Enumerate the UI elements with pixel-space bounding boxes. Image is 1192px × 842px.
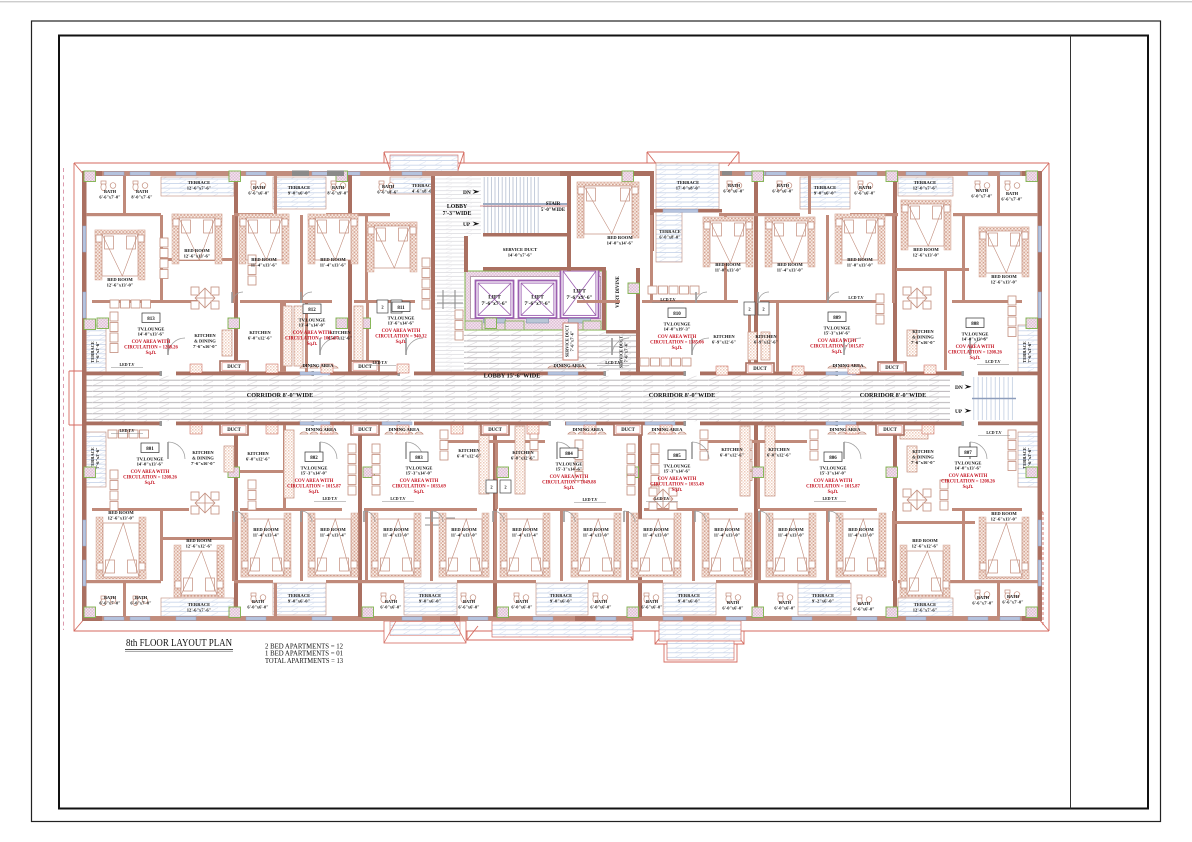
- svg-text:TERRACE7'-6"x3'-6": TERRACE7'-6"x3'-6": [90, 447, 100, 469]
- svg-text:12'-6"x7'-6": 12'-6"x7'-6": [913, 607, 938, 612]
- svg-text:KITCHEN& DINING7'-6"x16'-0": KITCHEN& DINING7'-6"x16'-0": [191, 450, 215, 466]
- svg-text:9'-2"x6'-0": 9'-2"x6'-0": [812, 598, 835, 603]
- svg-text:LCD T.V: LCD T.V: [986, 431, 1001, 435]
- svg-text:LIFT: LIFT: [531, 294, 544, 300]
- svg-text:DN: DN: [955, 385, 963, 391]
- svg-text:DUCT: DUCT: [621, 428, 635, 433]
- svg-text:TERRACE: TERRACE: [412, 183, 434, 188]
- svg-text:KITCHEN6'-0"x12'-6": KITCHEN6'-0"x12'-6": [246, 451, 270, 461]
- svg-text:7'-6"x9'-6": 7'-6"x9'-6": [566, 295, 592, 301]
- svg-text:KITCHEN6'-0"x12'-6": KITCHEN6'-0"x12'-6": [457, 448, 481, 458]
- svg-text:TERRACE: TERRACE: [812, 593, 834, 598]
- svg-text:809: 809: [833, 316, 841, 321]
- svg-text:LOBBY 15'-6"WIDE: LOBBY 15'-6"WIDE: [484, 373, 541, 380]
- svg-text:12'-6"x7'-6": 12'-6"x7'-6": [187, 607, 212, 612]
- svg-text:813: 813: [147, 317, 155, 322]
- svg-text:LED T.V: LED T.V: [323, 497, 338, 501]
- svg-text:TERRACE: TERRACE: [678, 593, 700, 598]
- svg-text:LOBBY7'-3"WIDE: LOBBY7'-3"WIDE: [443, 204, 472, 217]
- svg-text:LCD T.V: LCD T.V: [848, 296, 863, 300]
- svg-text:BED ROOM11'-4"x13'-0": BED ROOM11'-4"x13'-0": [383, 527, 410, 538]
- svg-text:BED ROOM11'-0"x13'-0": BED ROOM11'-0"x13'-0": [715, 262, 742, 273]
- svg-text:KITCHEN6'-9"x12'-6": KITCHEN6'-9"x12'-6": [712, 334, 736, 344]
- svg-text:DINING AREA: DINING AREA: [305, 427, 337, 432]
- svg-text:812: 812: [308, 308, 316, 313]
- svg-text:DUCT: DUCT: [883, 428, 897, 433]
- svg-text:BED ROOM11'-4"x13'-0": BED ROOM11'-4"x13'-0": [777, 262, 804, 273]
- svg-text:9'-0"x6'-0": 9'-0"x6'-0": [814, 190, 837, 195]
- svg-text:LCD T.V: LCD T.V: [390, 497, 405, 501]
- svg-text:810: 810: [673, 312, 681, 317]
- svg-text:DINING AREA: DINING AREA: [651, 427, 683, 432]
- svg-text:BED ROOM11'-4"x13'-0": BED ROOM11'-4"x13'-0": [451, 527, 478, 538]
- svg-text:9'-0"x6'-0": 9'-0"x6'-0": [550, 598, 573, 603]
- svg-text:BED ROOM12'-6"x13'-0": BED ROOM12'-6"x13'-0": [107, 277, 134, 288]
- svg-text:KITCHEN6'-0"x12'-6": KITCHEN6'-0"x12'-6": [720, 447, 744, 457]
- svg-text:807: 807: [964, 451, 972, 456]
- svg-text:BED ROOM12'-6"x12'-6": BED ROOM12'-6"x12'-6": [186, 538, 213, 549]
- svg-text:BED ROOM11'-4"x13'-6": BED ROOM11'-4"x13'-6": [251, 257, 278, 268]
- svg-text:TERRACE: TERRACE: [914, 602, 936, 607]
- svg-text:805: 805: [673, 454, 681, 459]
- svg-text:LIFT: LIFT: [488, 294, 501, 300]
- svg-text:DUCT: DUCT: [488, 428, 502, 433]
- svg-text:KITCHEN6'-0"x12'-6": KITCHEN6'-0"x12'-6": [767, 447, 791, 457]
- svg-text:DUCT: DUCT: [885, 366, 899, 371]
- svg-text:808: 808: [971, 322, 979, 327]
- svg-text:KITCHEN& DINING7'-6"x16'-0": KITCHEN& DINING7'-6"x16'-0": [911, 329, 935, 345]
- svg-text:LED T.V: LED T.V: [373, 361, 388, 365]
- svg-text:LED T.V: LED T.V: [583, 498, 598, 502]
- svg-text:LCD T.V: LCD T.V: [654, 497, 669, 501]
- svg-text:TV.LOUNGE14'-0"x13'-6": TV.LOUNGE14'-0"x13'-6": [962, 332, 989, 342]
- svg-text:BED ROOM11'-4"x13'-6": BED ROOM11'-4"x13'-6": [320, 257, 347, 268]
- svg-text:CORRIDOR 8'-0"WIDE: CORRIDOR 8'-0"WIDE: [860, 392, 927, 399]
- svg-text:VERY DIVINE: VERY DIVINE: [616, 276, 621, 308]
- svg-text:TERRACE: TERRACE: [419, 593, 441, 598]
- svg-text:TERRACE7'-6"x3'-6": TERRACE7'-6"x3'-6": [90, 341, 100, 363]
- svg-text:802: 802: [310, 456, 318, 461]
- svg-text:LCD T.V: LCD T.V: [985, 360, 1000, 364]
- svg-text:9'-0"x6'-0": 9'-0"x6'-0": [419, 598, 442, 603]
- svg-text:LCD T.V: LCD T.V: [605, 361, 620, 365]
- svg-text:BED ROOM12'-6"x13'-0": BED ROOM12'-6"x13'-0": [991, 274, 1018, 285]
- svg-text:BED ROOM11'-4"x13'-0": BED ROOM11'-4"x13'-0": [643, 527, 670, 538]
- svg-text:17'-0"x8'-0": 17'-0"x8'-0": [676, 185, 701, 190]
- svg-text:LED T.V: LED T.V: [120, 429, 135, 433]
- svg-text:806: 806: [829, 456, 837, 461]
- svg-text:TERRACE7'-6"x3'-6": TERRACE7'-6"x3'-6": [1022, 447, 1032, 469]
- svg-text:TERRACE: TERRACE: [188, 180, 210, 185]
- svg-text:TV.LOUNGE15'-3"x14'-0": TV.LOUNGE15'-3"x14'-0": [406, 466, 433, 476]
- svg-text:9'-0"x6'-0": 9'-0"x6'-0": [288, 190, 311, 195]
- svg-text:LED T.V: LED T.V: [120, 363, 135, 367]
- svg-text:801: 801: [146, 447, 154, 452]
- svg-text:BED ROOM12'-6"x13'-0": BED ROOM12'-6"x13'-0": [991, 511, 1018, 522]
- svg-text:KITCHEN6'-0"x12'-6": KITCHEN6'-0"x12'-6": [511, 450, 535, 460]
- svg-text:UP: UP: [463, 222, 471, 228]
- svg-text:TV.LOUNGE15'-3"x14'-6": TV.LOUNGE15'-3"x14'-6": [664, 464, 691, 474]
- svg-text:BED ROOM12'-6"x13'-0": BED ROOM12'-6"x13'-0": [108, 510, 135, 521]
- svg-text:12'-0"x7'-6": 12'-0"x7'-6": [913, 185, 938, 190]
- svg-text:DINING AREA: DINING AREA: [829, 427, 861, 432]
- svg-text:TV.LOUNGE14'-0"x13'-6": TV.LOUNGE14'-0"x13'-6": [138, 327, 165, 337]
- svg-text:SERVICE DUCT14'-0"x7'-6": SERVICE DUCT14'-0"x7'-6": [503, 247, 537, 258]
- svg-text:BED ROOM11'-4"x13'-4": BED ROOM11'-4"x13'-4": [512, 527, 539, 538]
- svg-text:TV.LOUNGE15'-3"x14'-0": TV.LOUNGE15'-3"x14'-0": [301, 466, 328, 476]
- svg-text:TV.LOUNGE14'-0"x13'-6": TV.LOUNGE14'-0"x13'-6": [955, 461, 982, 471]
- svg-text:KITCHEN6'-9"x12'-6": KITCHEN6'-9"x12'-6": [754, 334, 778, 344]
- svg-text:DINING AREA: DINING AREA: [302, 363, 334, 368]
- svg-text:TERRACE6'-0"x8'-0": TERRACE6'-0"x8'-0": [659, 229, 681, 239]
- svg-text:DINING AREA: DINING AREA: [572, 427, 604, 432]
- svg-text:UP: UP: [955, 409, 963, 415]
- svg-text:LIFT: LIFT: [573, 288, 586, 294]
- svg-text:DINING AREA: DINING AREA: [388, 427, 420, 432]
- svg-text:TERRACE: TERRACE: [814, 185, 836, 190]
- svg-text:BED ROOM11'-4"x13'-4": BED ROOM11'-4"x13'-4": [320, 527, 347, 538]
- svg-text:DUCT: DUCT: [753, 367, 767, 372]
- svg-text:BED ROOM12'-6"x13'-0": BED ROOM12'-6"x13'-0": [913, 247, 940, 258]
- svg-text:DUCT: DUCT: [227, 365, 241, 370]
- svg-text:TERRACE7'-6"x3'-6": TERRACE7'-6"x3'-6": [1022, 341, 1032, 363]
- svg-text:TV.LOUNGE13'-4"x14'-0": TV.LOUNGE13'-4"x14'-0": [299, 318, 326, 328]
- svg-text:BED ROOM11'-4"x13'-0": BED ROOM11'-4"x13'-0": [778, 527, 805, 538]
- svg-text:7'-6"x7'-6": 7'-6"x7'-6": [524, 301, 550, 307]
- svg-text:9'-0"x6'-0": 9'-0"x6'-0": [678, 598, 701, 603]
- svg-text:DN: DN: [463, 190, 471, 196]
- svg-text:DINING AREA: DINING AREA: [553, 363, 585, 368]
- svg-text:TERRACE: TERRACE: [188, 602, 210, 607]
- svg-text:KITCHEN6'-0"x12'-6": KITCHEN6'-0"x12'-6": [248, 330, 272, 340]
- svg-text:BED ROOM11'-4"x13'-4": BED ROOM11'-4"x13'-4": [253, 527, 280, 538]
- svg-text:DINING AREA: DINING AREA: [832, 363, 864, 368]
- svg-text:LCD T.V: LCD T.V: [660, 298, 675, 302]
- svg-text:7'-6"x7'-6": 7'-6"x7'-6": [481, 301, 507, 307]
- svg-text:KITCHEN& DINING7'-6"x16'-0": KITCHEN& DINING7'-6"x16'-0": [193, 333, 217, 349]
- svg-text:12'-6"x7'-6": 12'-6"x7'-6": [187, 185, 212, 190]
- svg-text:KITCHEN& DINING7'-6"x16'-0": KITCHEN& DINING7'-6"x16'-0": [911, 449, 935, 465]
- svg-text:CORRIDOR 8'-0"WIDE: CORRIDOR 8'-0"WIDE: [649, 392, 716, 399]
- svg-text:TERRACE: TERRACE: [550, 593, 572, 598]
- svg-text:BED ROOM11'-4"x13'-0": BED ROOM11'-4"x13'-0": [583, 527, 610, 538]
- svg-text:TV.LOUNGE15'-3"x14'-0": TV.LOUNGE15'-3"x14'-0": [820, 466, 847, 476]
- svg-text:LED T.V: LED T.V: [823, 497, 838, 501]
- svg-text:TERRACE: TERRACE: [914, 180, 936, 185]
- svg-text:TV.LOUNGE14'-0"x13'-6": TV.LOUNGE14'-0"x13'-6": [137, 457, 164, 467]
- svg-text:BED ROOM12'-6"x13'-6": BED ROOM12'-6"x13'-6": [184, 248, 211, 259]
- svg-text:DUCT: DUCT: [358, 428, 372, 433]
- svg-text:TV.LOUNGE15'-3"x14'-6": TV.LOUNGE15'-3"x14'-6": [556, 462, 583, 472]
- svg-text:BED ROOM14'-0"x14'-6": BED ROOM14'-0"x14'-6": [607, 235, 634, 246]
- svg-text:TOTAL APARTMENTS = 13: TOTAL APARTMENTS = 13: [265, 656, 343, 665]
- svg-text:TERRACE: TERRACE: [288, 185, 310, 190]
- svg-text:TERRACE: TERRACE: [288, 593, 310, 598]
- svg-text:811: 811: [397, 306, 405, 311]
- svg-text:TV.LOUNGE13'-6"x14'-6": TV.LOUNGE13'-6"x14'-6": [388, 316, 415, 326]
- svg-text:TV.LOUNGE14'-0"x19'-3": TV.LOUNGE14'-0"x19'-3": [664, 322, 691, 332]
- svg-text:TERRACE: TERRACE: [677, 180, 699, 185]
- svg-text:DUCT: DUCT: [227, 428, 241, 433]
- svg-text:BED ROOM11'-4"x13'-0": BED ROOM11'-4"x13'-0": [848, 527, 875, 538]
- svg-text:BED ROOM12'-6"x12'-6": BED ROOM12'-6"x12'-6": [912, 538, 939, 549]
- svg-text:804: 804: [565, 452, 573, 457]
- svg-text:BED ROOM11'-4"x13'-0": BED ROOM11'-4"x13'-0": [714, 527, 741, 538]
- svg-text:TV.LOUNGE15'-3"x14'-6": TV.LOUNGE15'-3"x14'-6": [824, 326, 851, 336]
- svg-text:BED ROOM11'-0"x13'-0": BED ROOM11'-0"x13'-0": [847, 257, 874, 268]
- svg-text:803: 803: [415, 456, 423, 461]
- svg-text:CORRIDOR 8'-0"WIDE: CORRIDOR 8'-0"WIDE: [247, 392, 314, 399]
- svg-text:9'-0"x6'-0": 9'-0"x6'-0": [288, 598, 311, 603]
- svg-text:8th FLOOR LAYOUT PLAN: 8th FLOOR LAYOUT PLAN: [126, 638, 232, 649]
